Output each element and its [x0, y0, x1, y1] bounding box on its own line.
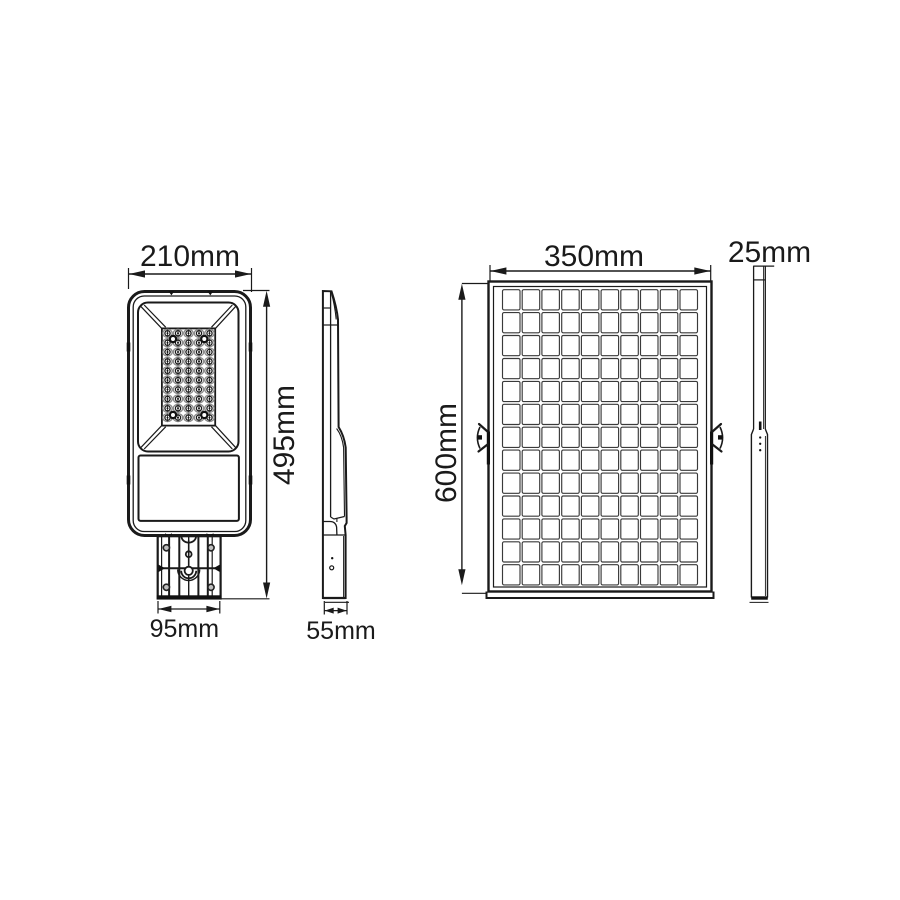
svg-text:95mm: 95mm — [150, 615, 219, 643]
svg-text:600mm: 600mm — [430, 403, 463, 503]
svg-text:350mm: 350mm — [544, 240, 644, 273]
svg-text:55mm: 55mm — [306, 617, 375, 645]
svg-text:25mm: 25mm — [728, 236, 811, 269]
svg-text:495mm: 495mm — [268, 385, 301, 485]
svg-text:210mm: 210mm — [140, 240, 240, 273]
